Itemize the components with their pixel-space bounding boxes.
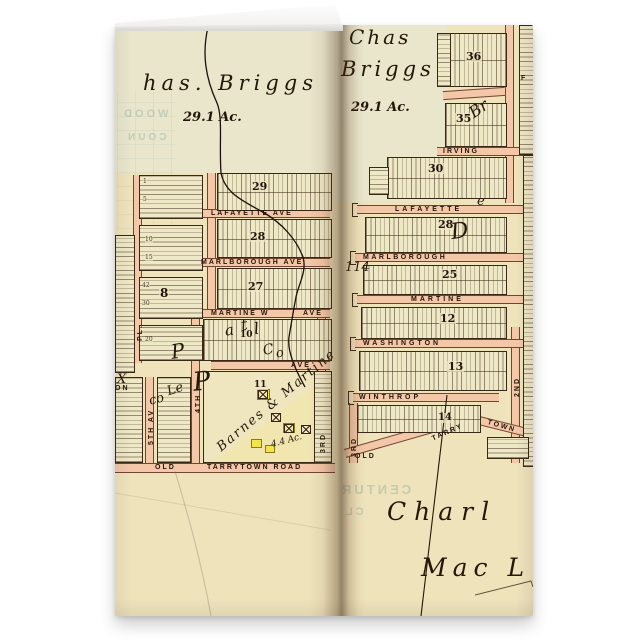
street-label-marlborough: MARLBOROUGH [363, 254, 447, 261]
street-label-marlborough: MARLBOROUGH AVE [201, 259, 303, 266]
script-letter: co [148, 391, 166, 407]
block-number: 35 [455, 113, 472, 124]
block-left-column-b [139, 225, 203, 271]
script-letter: a [224, 322, 235, 338]
bleedthrough-text: COUN [125, 133, 166, 143]
block-number: 11 [253, 381, 268, 390]
street-label-tarrytown-road: TARRYTOWN ROAD [207, 464, 302, 471]
street-label-pl: PL. [137, 324, 144, 341]
lot-number: 10 [145, 237, 153, 243]
block-number: 13 [447, 361, 464, 372]
owner-bottom-line2: Mac L [421, 555, 530, 580]
building-marker-icon [284, 424, 294, 433]
map-page-right: Chas Briggs 29.1 Ac. 114 [335, 25, 533, 616]
street-label-3rd: 3RD [351, 437, 358, 457]
street-label-3rd-left: 3RD [320, 433, 327, 453]
block-36-side-strip [437, 33, 451, 87]
acreage-label: 29.1 Ac. [183, 111, 242, 124]
block-number: 12 [439, 313, 456, 324]
street-label-washington: WASHINGTON [363, 340, 441, 347]
block-right-edge-upper [519, 25, 533, 155]
block-30-stub [369, 167, 389, 195]
street-label-martine-ave: AVE [303, 310, 323, 317]
building-marker-icon [301, 425, 311, 434]
street-label-old: OLD [155, 464, 176, 471]
lot-number: 1 [143, 179, 147, 185]
acreage-label: 29.1 Ac. [351, 101, 410, 114]
block-29 [217, 173, 332, 211]
block-number: 30 [427, 163, 444, 174]
block-number: 36 [465, 51, 482, 62]
building-marker-icon [271, 413, 281, 422]
block-12 [361, 307, 507, 339]
street-unnamed-vertical [207, 173, 216, 311]
block-below-road [487, 437, 529, 459]
block-28-right [365, 217, 507, 253]
owner-name-line1: Chas [349, 27, 411, 47]
script-letter: P [170, 340, 186, 362]
block-number: 8 [159, 287, 169, 299]
lot-number: 5 [143, 197, 147, 203]
script-letter-e: e [477, 195, 485, 208]
parcel-area-label: 114 [345, 261, 370, 274]
script-letter: X [117, 373, 126, 386]
block-13 [359, 351, 507, 391]
block-left-column-a [139, 175, 203, 219]
product-page-background: { "card": { "colors": { "paper": "#efe3b… [0, 0, 644, 644]
card-back-fold [115, 4, 343, 30]
street-label-old: OLD [355, 453, 376, 460]
owner-name-label: has. Briggs [143, 73, 318, 94]
street-label-fragment-f: F [521, 75, 527, 82]
street-label-martine: MARTINE [411, 296, 464, 303]
script-letter: C [262, 342, 275, 358]
lot-number: 30 [142, 301, 150, 307]
street-above-35 [443, 87, 505, 100]
block-number: 29 [251, 181, 268, 192]
block-28-left [217, 219, 332, 258]
greeting-card-front: WOOD COUN has. Briggs 29.1 Ac. LAFAYETTE… [115, 25, 533, 616]
street-label-lafayette: LAFAYETTE [395, 206, 462, 213]
owner-name-line2: Briggs [341, 59, 435, 80]
block-right-edge-lower [523, 155, 533, 467]
street-label-5th: 5TH AV [148, 409, 155, 445]
map-page-left: WOOD COUN has. Briggs 29.1 Ac. LAFAYETTE… [115, 25, 335, 616]
block-number: 28 [249, 231, 266, 242]
lot-number: 42 [142, 283, 150, 289]
block-27 [217, 268, 332, 309]
script-letter-d: D [450, 220, 471, 244]
bleedthrough-text: WOOD [121, 109, 168, 120]
street-end-cap [352, 203, 358, 217]
bleedthrough-text: CL [343, 507, 364, 518]
script-letter: P [192, 368, 212, 396]
lot-number: 20 [145, 337, 153, 343]
highlighted-building [251, 439, 262, 448]
street-label-irving: IRVING [443, 148, 479, 155]
block-left-edge-sliver [115, 235, 135, 373]
block-number: 25 [441, 269, 458, 280]
block-number: 14 [437, 413, 453, 423]
street-label-2nd: 2ND [514, 377, 521, 397]
street-label-lafayette: LAFAYETTE AVE [211, 210, 293, 217]
lot-number: 15 [145, 255, 153, 261]
block-30 [387, 157, 507, 199]
block-number: 27 [247, 281, 264, 292]
street-end-cap [348, 391, 354, 405]
owner-bottom-line1: Charl [387, 499, 497, 524]
street-end-cap [352, 293, 358, 307]
bleedthrough-text: CENTUR [339, 483, 411, 496]
street-label-winthrop: WINTHROP [359, 394, 421, 401]
street-end-cap [350, 337, 356, 351]
block-25 [363, 265, 507, 295]
